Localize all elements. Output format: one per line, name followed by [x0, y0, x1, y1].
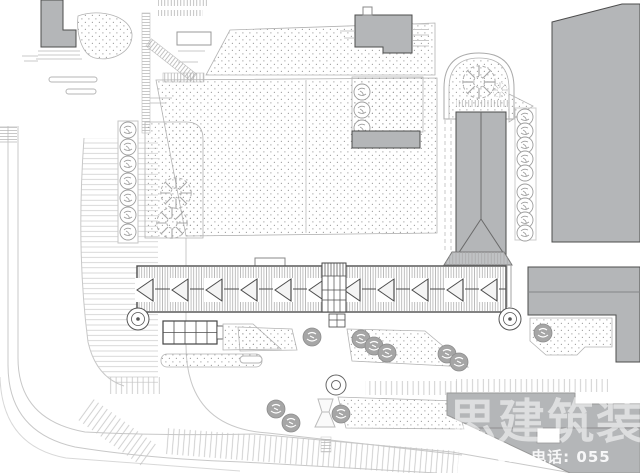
parking-stalls-row	[456, 379, 608, 392]
roof-vent-icon	[135, 278, 155, 302]
footpath-vertical	[142, 13, 150, 133]
roof-vent-icon	[170, 278, 190, 302]
bench	[49, 77, 97, 82]
roof-vent-icon	[376, 278, 396, 302]
column-circle-left	[127, 308, 149, 330]
bench	[240, 356, 262, 363]
building-top-left	[41, 0, 76, 47]
paving-notch	[537, 428, 560, 443]
tree-icon	[267, 400, 285, 418]
fence-strip	[456, 100, 508, 107]
roof-detail	[363, 7, 372, 15]
bottom-right-paved-zone	[447, 393, 640, 473]
building-top-right	[552, 4, 640, 242]
roof-vent-icon	[479, 278, 499, 302]
steps	[22, 51, 82, 61]
planting-bed-right	[530, 318, 612, 355]
site-plan-drawing	[0, 0, 640, 473]
roof-vent-icon	[239, 278, 259, 302]
planting-bed	[78, 13, 132, 59]
tree-icon	[517, 165, 533, 181]
site-plan-canvas: 思建筑装 om 电话: 055	[0, 0, 640, 473]
pergola-grid	[163, 321, 223, 344]
tree-icon	[120, 207, 136, 223]
tree-icon	[120, 122, 136, 138]
tree-icon	[120, 139, 136, 155]
planting-bed	[145, 122, 203, 238]
tree-icon	[378, 344, 396, 362]
tree-icon	[120, 156, 136, 172]
column-circle-right	[499, 308, 521, 330]
tree-icon	[120, 190, 136, 206]
roof-vent-icon	[445, 278, 465, 302]
tree-icon	[354, 84, 370, 100]
road-entry-hatch	[0, 127, 17, 142]
bench	[66, 89, 96, 94]
stair-core	[322, 263, 346, 327]
tree-icon	[517, 225, 533, 241]
gable-end-hatch	[444, 252, 512, 265]
planting-band	[238, 327, 297, 351]
tree-icon	[282, 414, 300, 432]
roof-vent-icon	[204, 278, 224, 302]
building-top-center	[355, 15, 412, 53]
small-structure-outline	[177, 32, 211, 45]
tree-icon	[354, 102, 370, 118]
tree-strip-left	[118, 121, 203, 243]
roof-vent-icon	[273, 278, 293, 302]
tree-icon	[303, 328, 321, 346]
fountain-circle	[326, 375, 346, 395]
footpath-strip	[158, 0, 207, 6]
tree-icon	[534, 324, 552, 342]
tree-icon	[120, 224, 136, 240]
parking-stalls-row	[365, 381, 457, 395]
crosswalk	[321, 437, 331, 452]
low-building	[352, 131, 420, 148]
parking-stalls-row	[108, 377, 160, 394]
tree-icon	[332, 405, 350, 423]
footpath-strip	[158, 10, 203, 16]
planting-band	[338, 397, 464, 429]
roof-vent-icon	[410, 278, 430, 302]
tree-icon	[450, 353, 468, 371]
gable-roof-building-group	[445, 100, 536, 257]
tree-icon	[120, 173, 136, 189]
